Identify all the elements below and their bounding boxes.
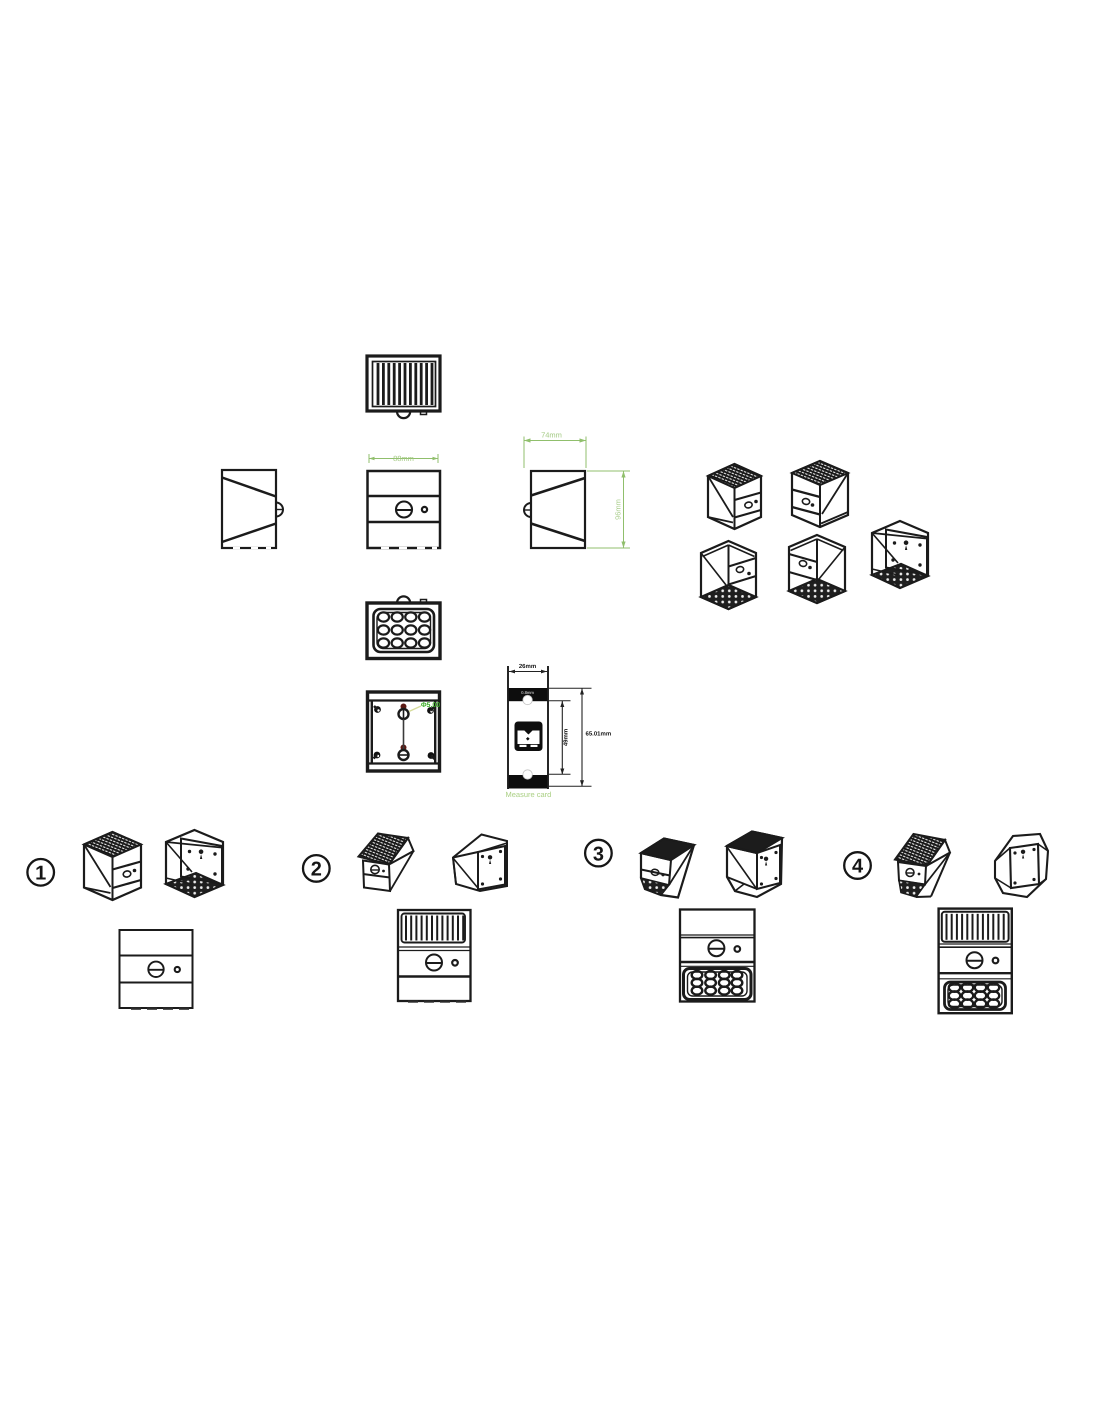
svg-text:65.01mm: 65.01mm	[586, 731, 612, 738]
svg-text:96mm: 96mm	[614, 499, 623, 520]
svg-text:88mm: 88mm	[393, 454, 414, 463]
svg-text:4: 4	[852, 856, 864, 878]
svg-text:3: 3	[593, 843, 604, 865]
svg-text:2: 2	[311, 859, 322, 881]
svg-text:Measure card: Measure card	[506, 790, 552, 799]
svg-text:74mm: 74mm	[541, 431, 562, 440]
svg-text:Φ5.00: Φ5.00	[421, 702, 440, 709]
svg-text:26mm: 26mm	[519, 663, 536, 670]
svg-text:49mm: 49mm	[563, 729, 570, 746]
svg-text:0.8mm: 0.8mm	[521, 690, 534, 695]
svg-text:1: 1	[35, 863, 46, 885]
